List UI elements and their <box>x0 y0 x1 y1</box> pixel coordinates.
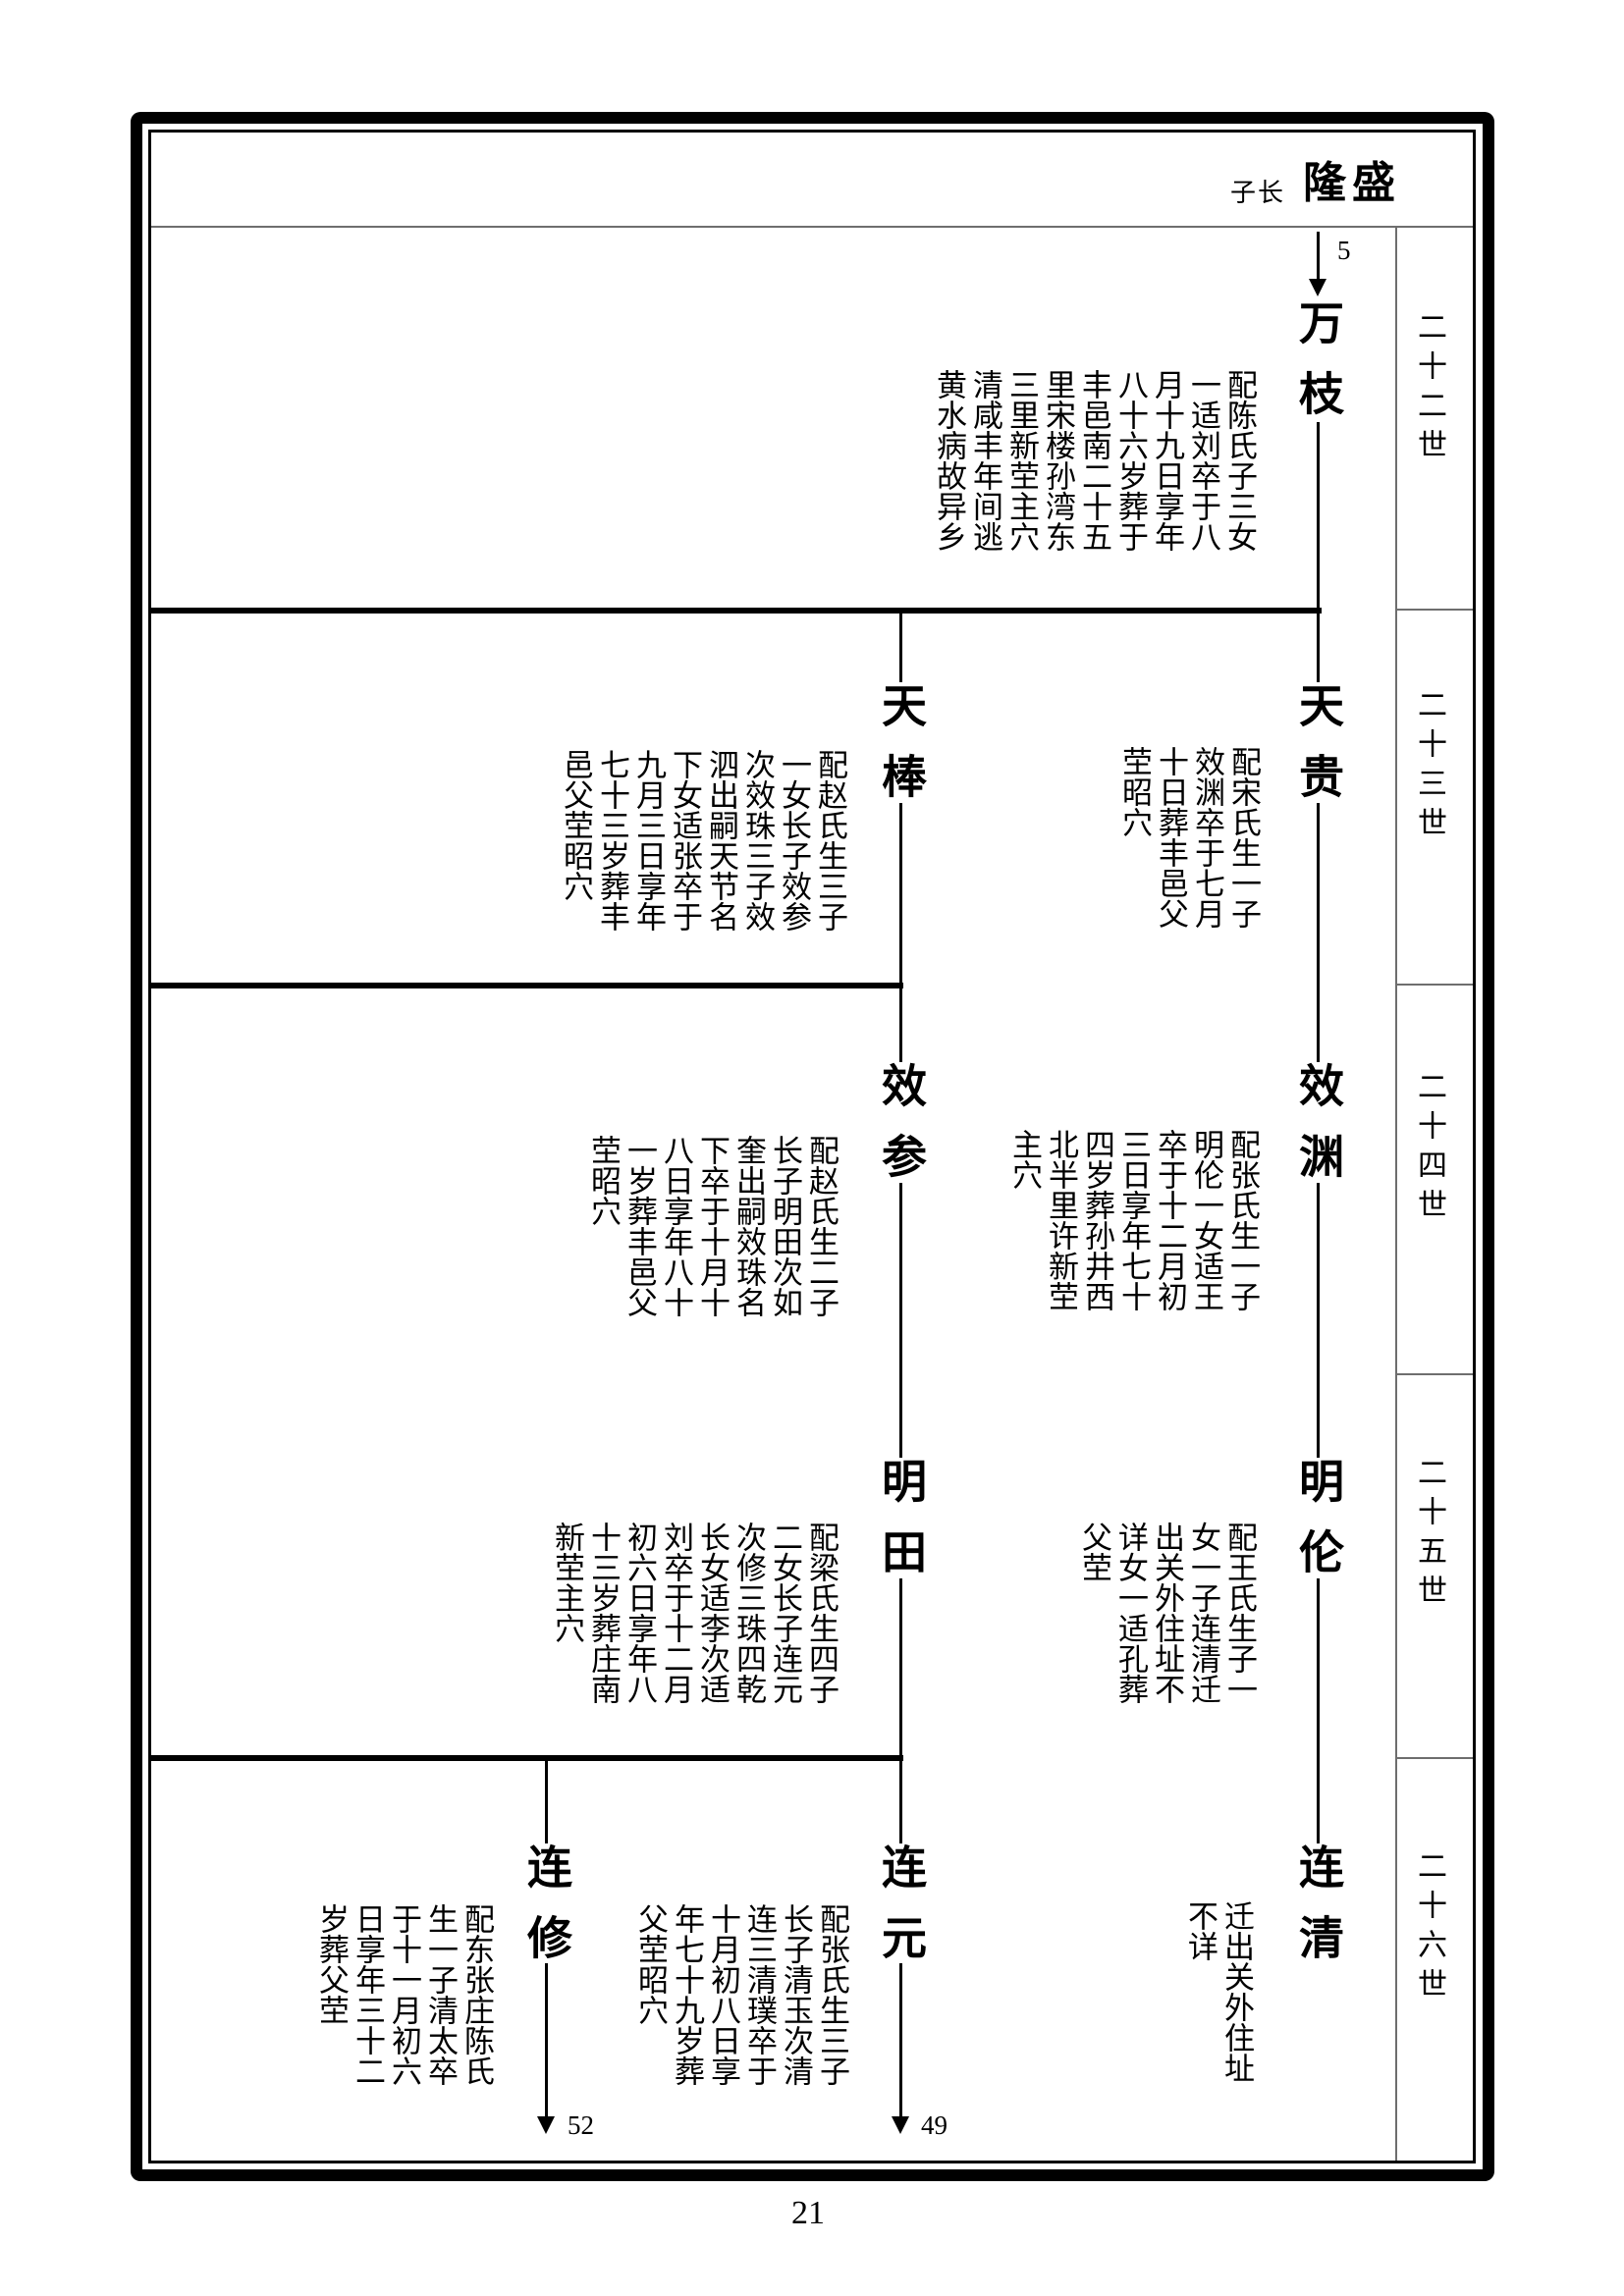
generation-label-22: 二十二世 <box>1414 311 1443 468</box>
connector-line <box>1317 422 1320 682</box>
person-name-tiangui: 天贵 <box>1295 682 1340 824</box>
sidebar-cell-line <box>1395 984 1473 986</box>
person-name-minglun: 明伦 <box>1295 1458 1340 1599</box>
person-name-xiaocan: 效参 <box>878 1062 923 1203</box>
generation-label-23: 二十三世 <box>1414 689 1443 846</box>
continuation-arrow-line <box>899 1963 902 2118</box>
person-desc-xiaocan: 配赵氏生二子长子明田次如奎出嗣效珠名下卒于十月十八日享年八十一岁葬丰邑父茔昭穴 <box>585 1135 839 1323</box>
header-separator-line <box>151 226 1473 228</box>
person-name-lianqing: 连清 <box>1295 1843 1340 1985</box>
person-name-tianbang: 天棒 <box>878 682 923 824</box>
row-separator-line <box>151 1755 903 1761</box>
person-desc-minglun: 配王氏生子一女一子连清迁出关外住址不详女一适孔葬父茔 <box>1076 1522 1258 1710</box>
sidebar-divider <box>1395 226 1397 2161</box>
generation-label-25: 二十五世 <box>1414 1457 1443 1614</box>
connector-line <box>899 1578 902 1843</box>
person-desc-mingtian: 配梁氏生四子二女长子连元次修三珠四乾长女适李次适刘卒于十二月初六日享年八十三岁葬… <box>549 1522 839 1710</box>
entry-arrow-number: 5 <box>1337 236 1351 266</box>
connector-line <box>1317 1183 1320 1458</box>
person-desc-xiaoyuan: 配张氏生一子明伦一女适王卒于十二月初三日享年七十四岁葬孙井西北半里许新茔主穴 <box>1006 1129 1261 1317</box>
sidebar-cell-line <box>1395 1757 1473 1759</box>
connector-line <box>899 803 902 1062</box>
connector-line <box>899 611 902 682</box>
connector-line <box>899 1183 902 1458</box>
row-separator-line <box>151 983 903 988</box>
person-desc-wanzhi: 配陈氏子三女一适刘卒于八月十九日享年八十六岁葬于丰邑南二十五里宋楼孙湾东三里新茔… <box>931 369 1258 558</box>
person-desc-tianbang: 配赵氏生三子一女长子效参次效珠三子效泗出嗣天节名下女适张卒于九月三日享年七十三岁… <box>558 749 848 937</box>
generation-label-24: 二十四世 <box>1414 1071 1443 1228</box>
continuation-number-right: 49 <box>921 2110 947 2141</box>
person-desc-lianqing: 迁出关外住址不详 <box>1182 1900 1255 2089</box>
person-name-xiaoyuan: 效渊 <box>1295 1062 1340 1203</box>
connector-line <box>545 1758 548 1843</box>
continuation-arrow-line <box>545 1963 548 2118</box>
continuation-arrow-down-icon <box>537 2116 555 2134</box>
person-name-wanzhi: 万枝 <box>1295 299 1340 441</box>
connector-line <box>1317 803 1320 1062</box>
header-title: 隆盛 <box>1303 147 1401 210</box>
header-prefix: 子长 <box>1230 173 1285 209</box>
person-desc-tiangui: 配宋氏生一子效渊卒于七月十日葬丰邑父茔昭穴 <box>1116 746 1262 934</box>
row-separator-line <box>151 608 1322 614</box>
connector-line <box>1317 1578 1320 1843</box>
generation-label-26: 二十六世 <box>1414 1850 1443 2007</box>
page-number: 21 <box>791 2195 825 2232</box>
sidebar-cell-line <box>1395 1373 1473 1375</box>
sidebar-cell-line <box>1395 609 1473 611</box>
genealogy-page: 子长 隆盛 二十二世 二十三世 二十四世 二十五世 二十六世 5 万枝 配陈氏子… <box>0 0 1624 2296</box>
entry-arrow-line <box>1317 232 1320 281</box>
person-desc-lianyuan: 配张氏生三子长子清玉次清连三清璞卒于十月初八日享年七十九岁葬父茔昭穴 <box>632 1903 850 2092</box>
continuation-number-left: 52 <box>568 2110 594 2141</box>
person-desc-lianxiu: 配东张庄陈氏生一子清太卒于十一月初六日享年三十二岁葬父茔 <box>313 1903 495 2092</box>
entry-arrow-down-icon <box>1309 279 1326 296</box>
person-name-mingtian: 明田 <box>878 1458 923 1599</box>
continuation-arrow-down-icon <box>892 2116 909 2134</box>
